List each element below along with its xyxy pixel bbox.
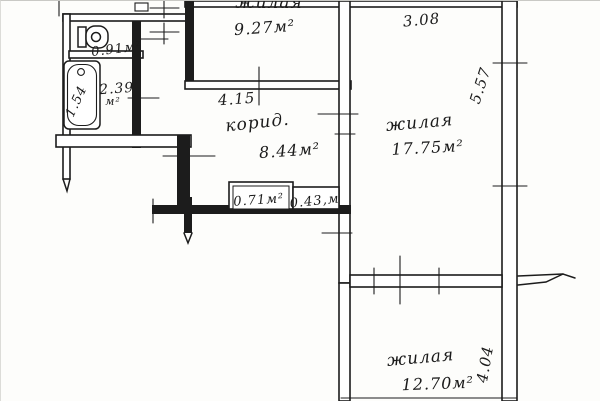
corridor-area: 8.44м²: [258, 139, 320, 162]
room-right-area: 17.75м²: [391, 136, 464, 159]
dim-bottom-room-height: 4.04: [473, 344, 497, 385]
room-top-area: 9.27м²: [233, 16, 295, 39]
bath-area-unit: м²: [105, 95, 121, 108]
labels: жилая 9.27м² 0.91м² 2.39 м² 1.54 4.15 ко…: [63, 1, 497, 394]
dim-right-room-width: 3.08: [402, 9, 441, 30]
wall-bottomroom-left: [339, 283, 350, 401]
balcony-mark: [518, 274, 575, 285]
wall-hall-right-lower: [177, 135, 190, 205]
room-bottom-area: 12.70м²: [401, 373, 474, 395]
floor-plan: жилая 9.27м² 0.91м² 2.39 м² 1.54 4.15 ко…: [0, 0, 600, 401]
wall-topleft: [63, 14, 193, 21]
dim-corridor-width: 4.15: [216, 89, 256, 110]
wall-stub-break: [184, 233, 192, 243]
wall-room-top-bottom: [185, 81, 351, 89]
dim-right-room-height: 5.57: [466, 65, 495, 106]
wall-left-break: [63, 179, 70, 191]
room-top-name: жилая: [235, 1, 303, 13]
room-bottom-name: жилая: [386, 345, 455, 371]
room-right-name: жилая: [385, 110, 454, 136]
wall-right-outer: [502, 1, 517, 401]
wall-hall-right-upper: [185, 1, 194, 89]
wall-stub-below: [184, 197, 192, 233]
wall-bath-bottom: [56, 135, 191, 147]
vent-box: [135, 3, 148, 11]
floor-plan-drawing: жилая 9.27м² 0.91м² 2.39 м² 1.54 4.15 ко…: [1, 1, 600, 401]
wall-center-vertical: [339, 1, 350, 283]
corridor-name: корид.: [224, 110, 290, 137]
wall-room-divider: [350, 275, 502, 287]
